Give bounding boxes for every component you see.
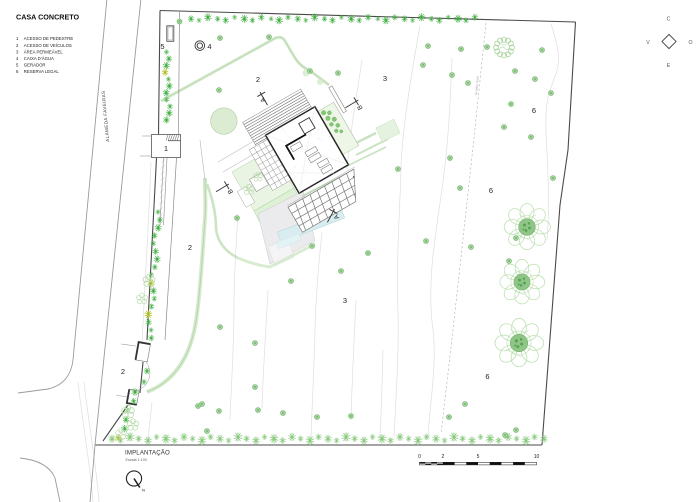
svg-text:10: 10 xyxy=(534,454,540,460)
svg-text:6: 6 xyxy=(485,372,489,381)
svg-text:V: V xyxy=(646,40,650,46)
svg-text:6: 6 xyxy=(532,106,536,115)
svg-text:3: 3 xyxy=(343,296,347,305)
svg-text:3: 3 xyxy=(383,74,387,83)
svg-text:IMPLANTAÇÃO: IMPLANTAÇÃO xyxy=(125,450,170,457)
svg-text:N: N xyxy=(142,488,145,493)
svg-text:Escala 1:100: Escala 1:100 xyxy=(126,458,147,462)
svg-text:GERADOR: GERADOR xyxy=(24,63,46,68)
svg-text:ACESSO DE VEÍCULOS: ACESSO DE VEÍCULOS xyxy=(24,43,72,48)
svg-text:6: 6 xyxy=(489,186,493,195)
svg-text:5: 5 xyxy=(160,42,164,51)
svg-text:E: E xyxy=(667,63,671,69)
svg-text:C: C xyxy=(667,17,671,23)
svg-text:1: 1 xyxy=(164,144,168,153)
svg-text:ACESSO DE PEDESTRE: ACESSO DE PEDESTRE xyxy=(24,36,74,41)
svg-text:CAIXA D’ÁGUA: CAIXA D’ÁGUA xyxy=(24,56,54,61)
svg-text:RESERVA LEGAL: RESERVA LEGAL xyxy=(24,69,60,74)
svg-text:CASA CONCRETO: CASA CONCRETO xyxy=(16,13,80,22)
svg-text:0: 0 xyxy=(418,454,421,460)
svg-text:4: 4 xyxy=(207,42,211,51)
svg-text:2: 2 xyxy=(256,75,260,84)
svg-text:2: 2 xyxy=(442,454,445,460)
svg-text:2: 2 xyxy=(188,243,192,252)
svg-text:O: O xyxy=(688,40,692,46)
svg-text:ÁREA PERMEÁVEL: ÁREA PERMEÁVEL xyxy=(24,49,64,54)
svg-text:2: 2 xyxy=(121,367,125,376)
svg-text:5: 5 xyxy=(477,454,480,460)
